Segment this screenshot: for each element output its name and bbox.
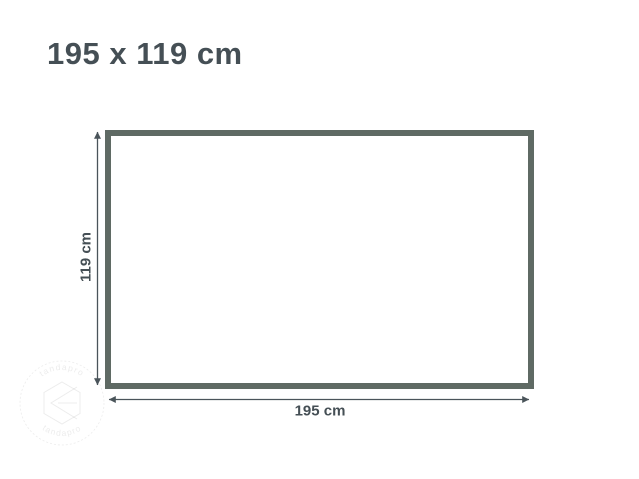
dimension-diagram: tandapro tandapro 195 x 119 cm 119 cm 19… bbox=[0, 0, 639, 479]
height-label: 119 cm bbox=[78, 232, 95, 282]
width-label: 195 cm bbox=[295, 403, 346, 420]
